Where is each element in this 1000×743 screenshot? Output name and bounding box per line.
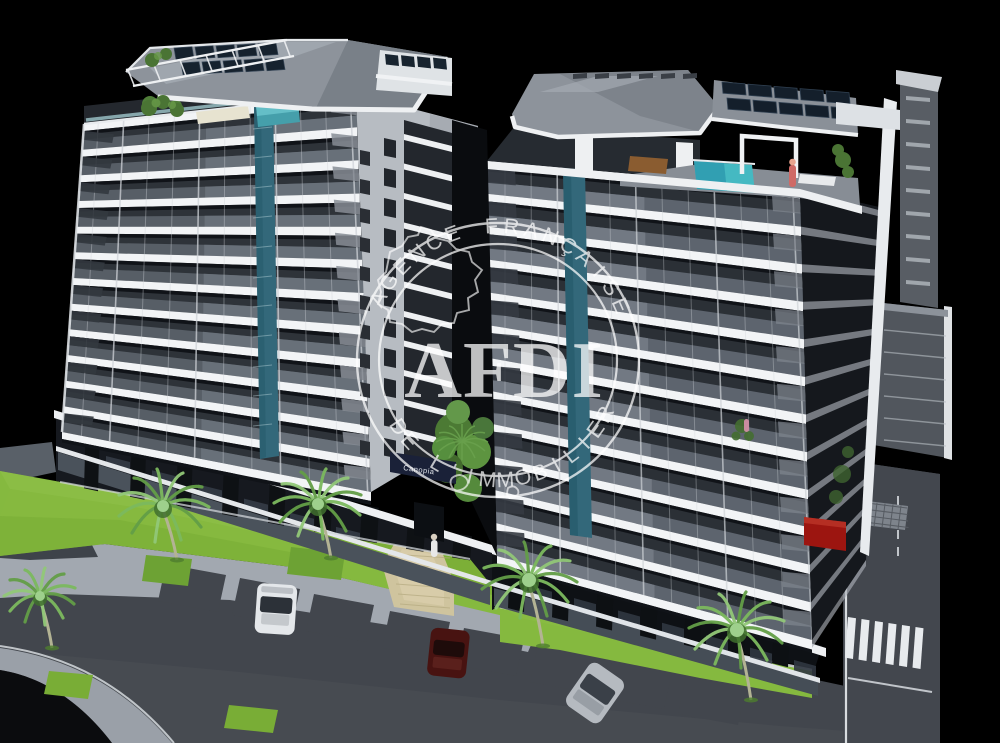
svg-text:AFDI: AFDI xyxy=(404,327,604,415)
svg-text:R: R xyxy=(503,214,521,239)
svg-text:M: M xyxy=(478,467,498,492)
svg-text:F: F xyxy=(484,214,498,239)
